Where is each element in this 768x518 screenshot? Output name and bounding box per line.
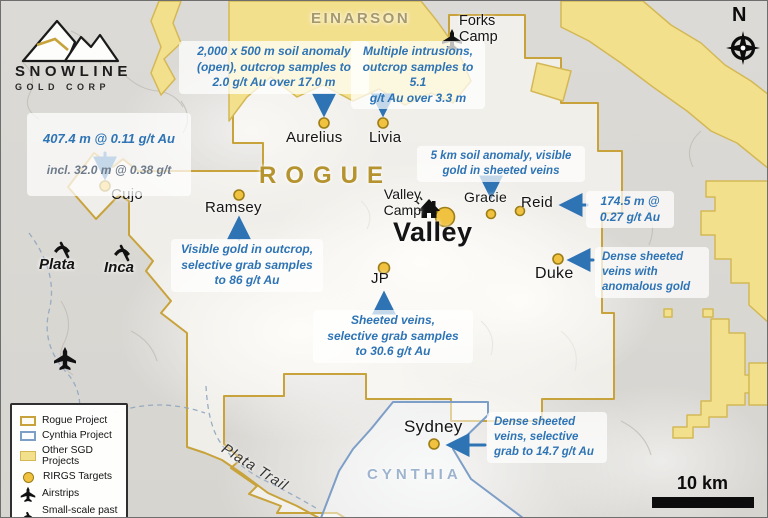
scale-bar-label: 10 km [677,473,728,494]
cynthia-swatch-icon [20,431,36,441]
compass-rose-icon [726,31,760,65]
pick-icon [20,509,36,518]
map-canvas: SNOWLINE GOLD CORP EINARSON ROGUE CYNTHI… [0,0,768,518]
target-dot-sydney [429,439,439,449]
annotation-cujo-line1: 407.4 m @ 0.11 g/t Au [34,131,184,148]
map-legend: Rogue Project Cynthia Project Other SGD … [10,403,128,518]
region-label-einarson: EINARSON [311,11,410,28]
target-label-valley: Valley [393,217,473,247]
annotation-cujo-line2: incl. 32.0 m @ 0.38 g/t [34,163,184,179]
annotation-livia-intrusions: Multiple intrusions, outcrop samples to … [351,41,485,109]
target-dot-duke [553,254,563,264]
annotation-sydney-veins: Dense sheeted veins, selective grab to 1… [487,412,607,463]
annotation-reid-drill-result: 174.5 m @ 0.27 g/t Au [586,191,674,228]
annotation-duke-veins: Dense sheeted veins with anomalous gold [595,247,709,298]
target-dot-icon [23,472,34,483]
past-producer-icon-inca [114,246,130,260]
annotation-cujo-drill-result: 407.4 m @ 0.11 g/t Au incl. 32.0 m @ 0.3… [27,113,191,196]
target-label-jp: JP [371,271,389,288]
past-producer-icon-plata [54,243,70,257]
annotation-jp-sheeted-veins: Sheeted veins, selective grab samples to… [313,310,473,363]
target-dot-aurelius [319,118,329,128]
compass-north-label: N [732,4,746,27]
target-dot-gracie [487,210,496,219]
camp-label-valley: Valley Camp [367,187,421,218]
annotation-ramsey-visible-gold: Visible gold in outcrop, selective grab … [171,239,323,292]
rogue-swatch-icon [20,416,36,426]
target-label-duke: Duke [535,265,574,283]
target-label-ramsey: Ramsey [205,200,262,217]
legend-label: RIRGS Targets [43,471,112,483]
legend-item-cynthia: Cynthia Project [20,430,118,442]
legend-item-past-producers: Small-scale past producers (Ag) [20,505,118,518]
target-dot-livia [378,118,388,128]
target-label-reid: Reid [521,195,553,212]
target-label-sydney: Sydney [404,417,463,436]
legend-label: Other SGD Projects [42,445,118,469]
annotation-aurelius-soil-anomaly: 2,000 x 500 m soil anomaly (open), outcr… [179,41,369,94]
brand-name: SNOWLINE [15,63,145,80]
brand-subtitle: GOLD CORP [15,82,145,92]
region-label-cynthia: CYNTHIA [367,467,462,484]
legend-label: Rogue Project [42,415,107,427]
scale-bar [652,497,754,508]
brand-logo: SNOWLINE GOLD CORP [15,11,145,92]
airstrip-icon-west [54,347,76,370]
legend-item-rogue: Rogue Project [20,415,118,427]
sgd-swatch-icon [20,451,36,461]
target-label-livia: Livia [369,130,401,147]
legend-item-other-sgd: Other SGD Projects [20,445,118,469]
past-producer-label-inca: Inca [104,260,134,277]
legend-item-airstrips: Airstrips [20,486,118,502]
region-label-rogue: ROGUE [259,163,392,190]
legend-item-rirgs-targets: RIRGS Targets [20,471,118,483]
target-label-aurelius: Aurelius [286,130,343,147]
legend-label: Small-scale past producers (Ag) [42,505,118,518]
target-label-gracie: Gracie [464,190,507,206]
legend-label: Airstrips [42,488,79,500]
past-producer-label-plata: Plata [39,257,75,274]
airstrip-plane-icon [20,486,36,502]
annotation-gracie-soil-anomaly: 5 km soil anomaly, visible gold in sheet… [417,146,585,182]
legend-label: Cynthia Project [42,430,112,442]
